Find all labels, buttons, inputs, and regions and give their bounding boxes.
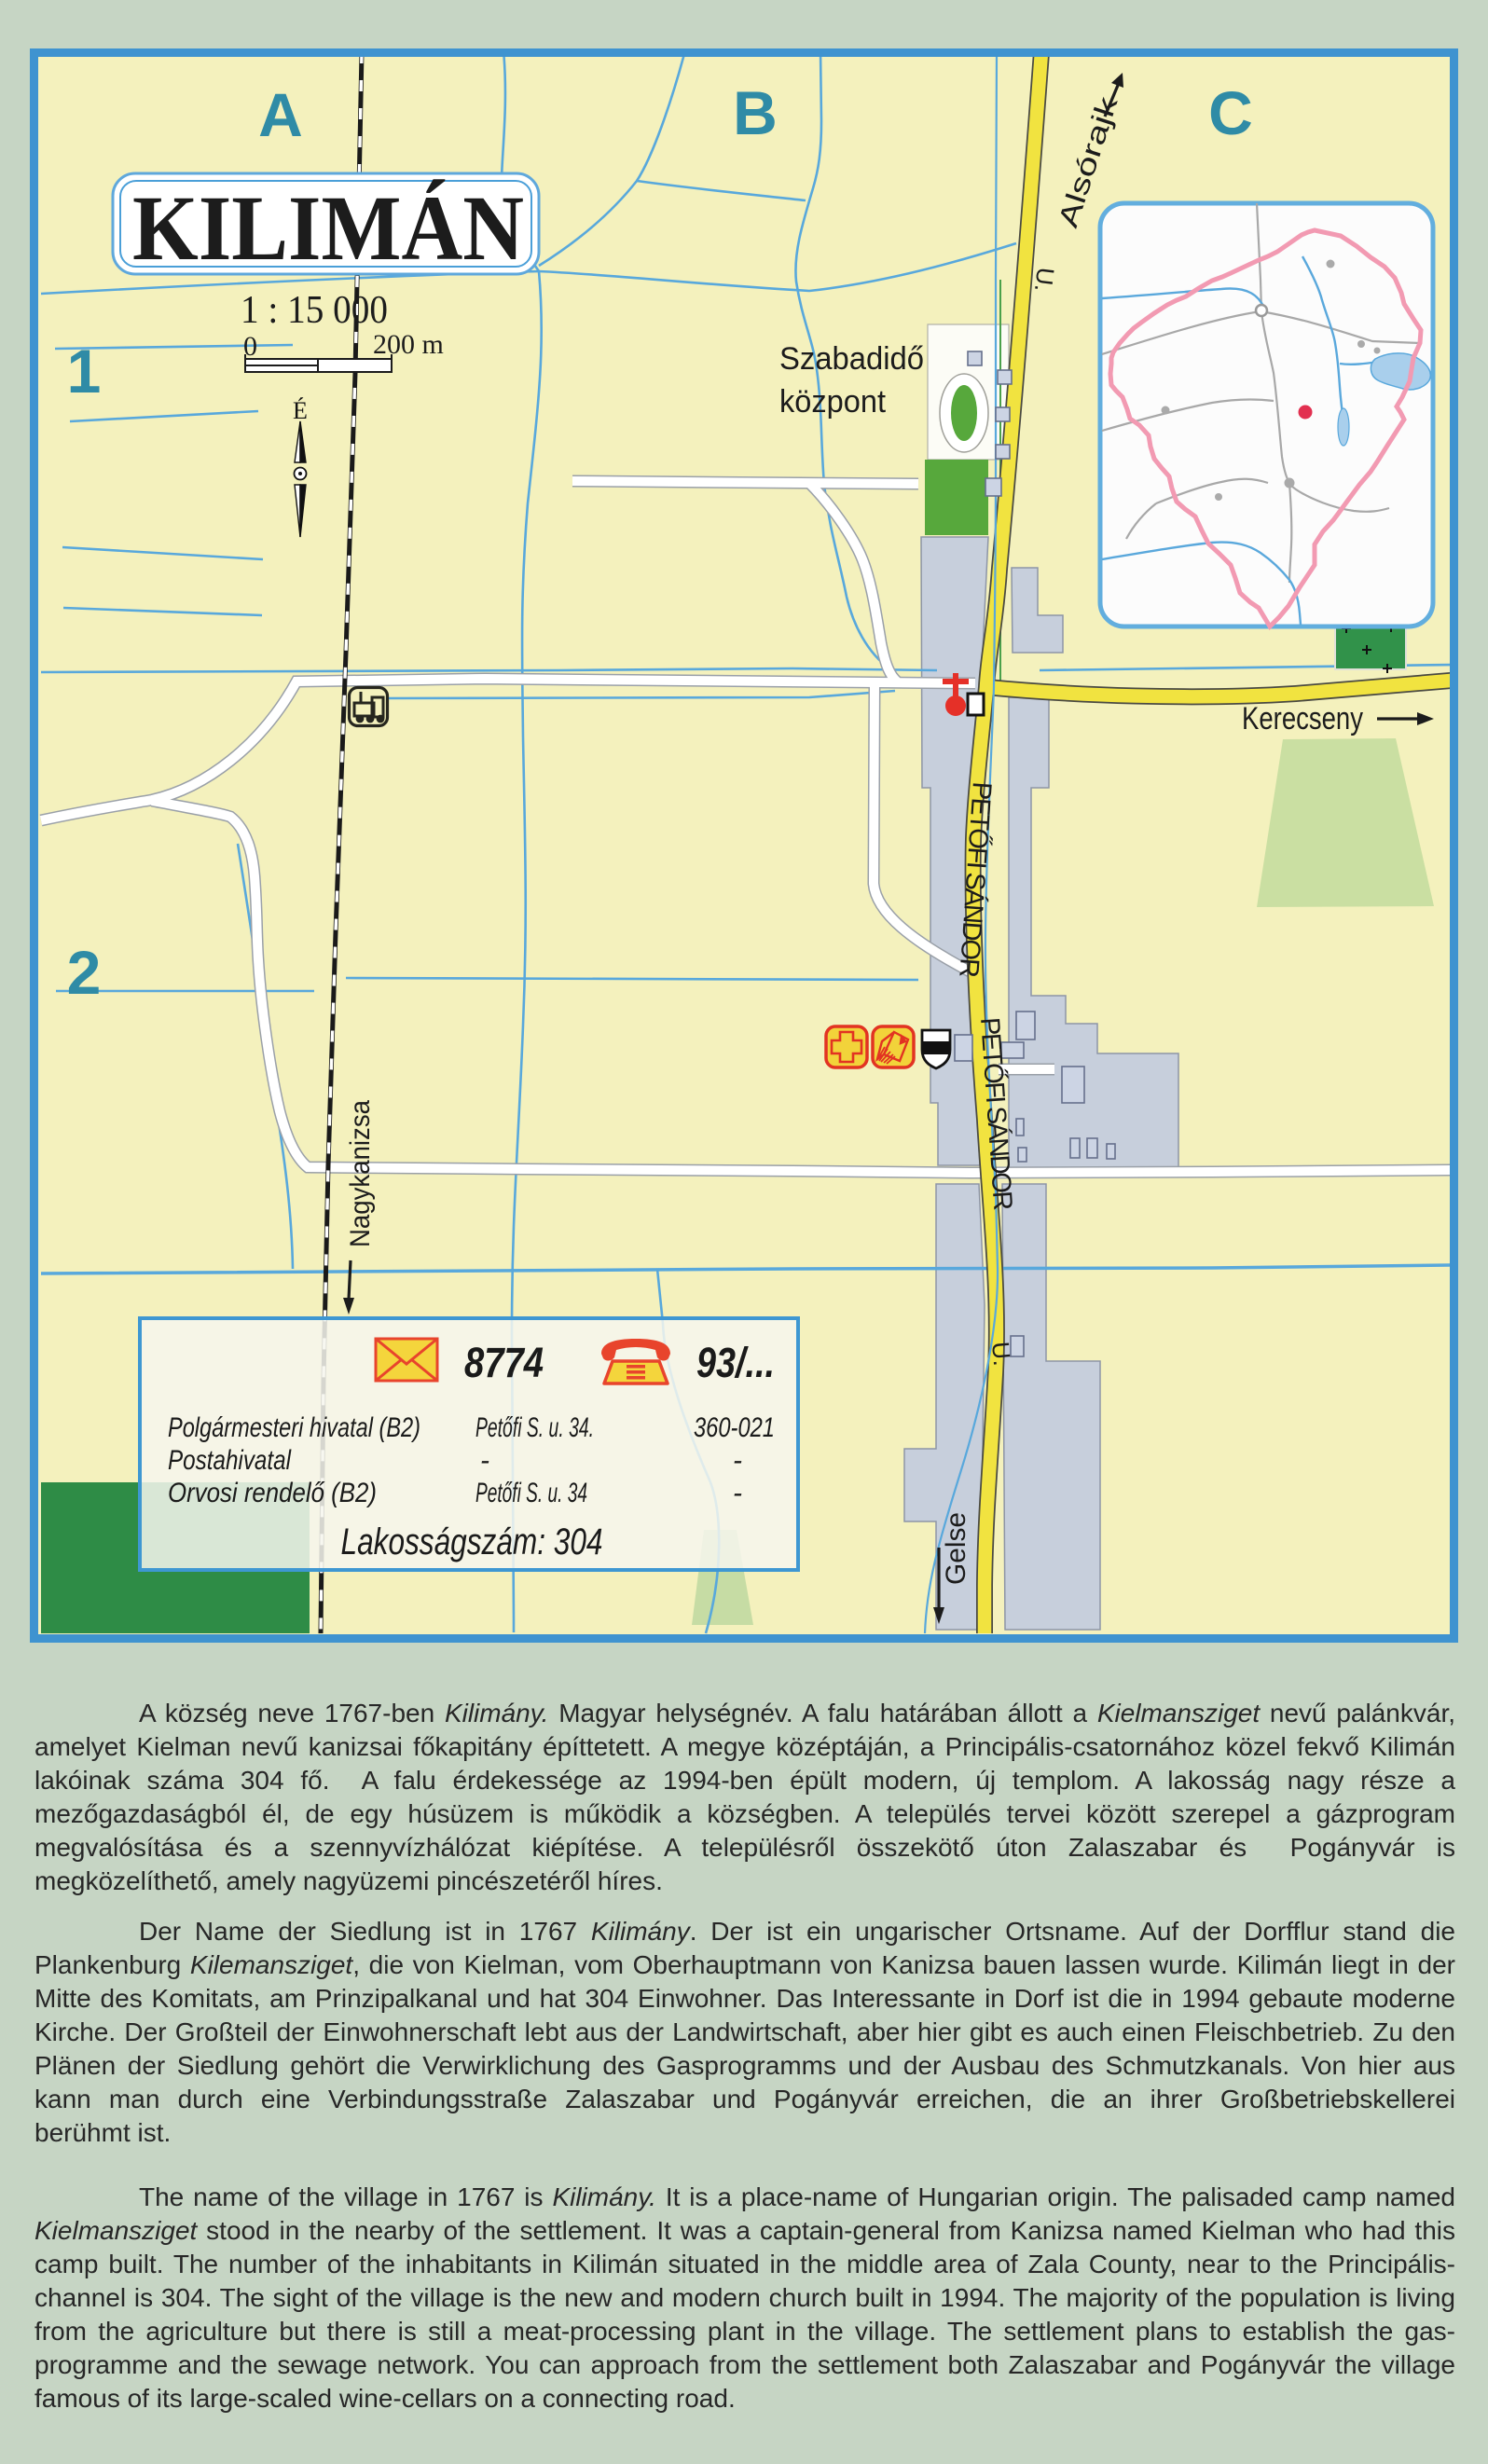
- svg-text:2: 2: [67, 938, 102, 1007]
- svg-text:A: A: [258, 80, 303, 149]
- svg-text:-: -: [733, 1445, 742, 1476]
- svg-text:Lakosságszám: 304: Lakosságszám: 304: [341, 1521, 603, 1562]
- svg-text:Nagykanizsa: Nagykanizsa: [345, 1100, 376, 1247]
- svg-text:-: -: [733, 1478, 742, 1508]
- svg-text:központ: központ: [779, 384, 887, 420]
- svg-text:Polgármesteri hivatal (B2): Polgármesteri hivatal (B2): [168, 1412, 420, 1443]
- svg-text:C: C: [1208, 78, 1253, 147]
- svg-text:1 : 15 000: 1 : 15 000: [241, 289, 388, 332]
- svg-text:360-021: 360-021: [694, 1412, 775, 1443]
- svg-text:-: -: [480, 1445, 489, 1476]
- svg-text:B: B: [733, 78, 778, 147]
- svg-text:Kerecseny: Kerecseny: [1242, 701, 1363, 736]
- svg-text:200 m: 200 m: [373, 329, 444, 360]
- svg-text:Petőfi S. u. 34: Petőfi S. u. 34: [475, 1478, 587, 1508]
- svg-text:8774: 8774: [464, 1339, 544, 1386]
- svg-text:Gelse: Gelse: [941, 1512, 971, 1585]
- svg-text:Szabadidő: Szabadidő: [779, 341, 924, 377]
- svg-text:Orvosi rendelő (B2): Orvosi rendelő (B2): [168, 1478, 377, 1508]
- svg-text:U.: U.: [1029, 266, 1060, 293]
- svg-text:93/...: 93/...: [696, 1339, 775, 1386]
- svg-text:É: É: [293, 397, 308, 424]
- svg-text:Postahivatal: Postahivatal: [168, 1445, 292, 1476]
- svg-text:Petőfi S. u. 34.: Petőfi S. u. 34.: [475, 1412, 594, 1443]
- svg-text:KILIMÁN: KILIMÁN: [132, 176, 524, 280]
- svg-text:U.: U.: [986, 1341, 1016, 1368]
- svg-text:1: 1: [67, 337, 102, 406]
